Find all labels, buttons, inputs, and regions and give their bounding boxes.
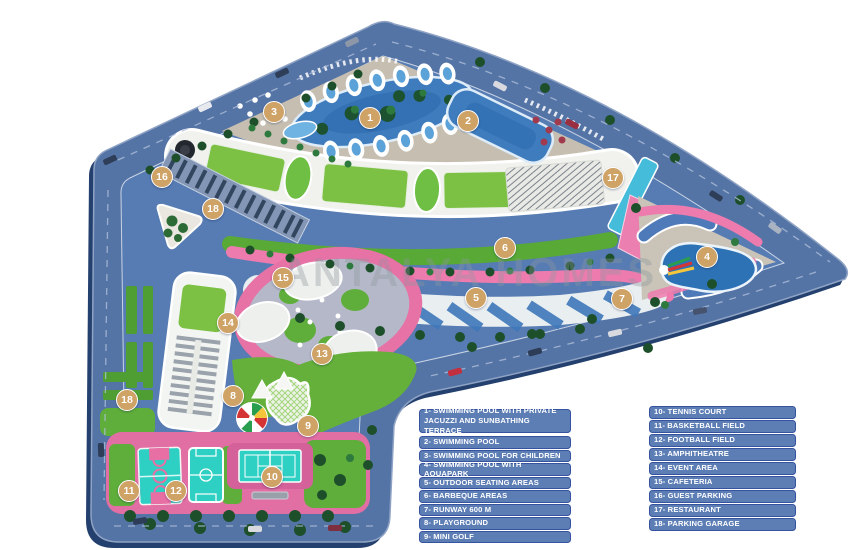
- map-marker-13: 13: [311, 343, 333, 365]
- map-marker-17: 17: [602, 167, 624, 189]
- map-marker-12: 12: [165, 480, 187, 502]
- map-marker-4: 4: [696, 246, 718, 268]
- legend-item-15: 15- CAFETERIA: [649, 476, 796, 489]
- map-marker-5: 5: [465, 287, 487, 309]
- map-marker-9: 9: [297, 415, 319, 437]
- map-marker-18: 18: [202, 198, 224, 220]
- map-marker-16: 16: [151, 166, 173, 188]
- football-field: [189, 448, 223, 502]
- map-marker-2: 2: [457, 110, 479, 132]
- legend-item-4: 4- SWIMMING POOL WITH AQUAPARK: [419, 463, 571, 476]
- legend-item-18: 18- PARKING GARAGE: [649, 518, 796, 531]
- roof-garden: [322, 163, 409, 208]
- map-marker-7: 7: [611, 288, 633, 310]
- roof-garden: [444, 171, 517, 208]
- legend-item-7: 7- RUNWAY 600 M: [419, 504, 571, 517]
- legend-item-17: 17- RESTAURANT: [649, 504, 796, 517]
- pergola-roof: [505, 160, 604, 212]
- bench: [252, 492, 288, 499]
- legend-item-12: 12- FOOTBALL FIELD: [649, 434, 796, 447]
- map-marker-18: 18: [116, 389, 138, 411]
- carousel: [236, 402, 268, 434]
- legend-item-16: 16- GUEST PARKING: [649, 490, 796, 503]
- legend-item-14: 14- EVENT AREA: [649, 462, 796, 475]
- legend-item-13: 13- AMPHITHEATRE: [649, 448, 796, 461]
- map-marker-1: 1: [359, 107, 381, 129]
- legend-item-8: 8- PLAYGROUND: [419, 517, 571, 530]
- map-marker-3: 3: [263, 101, 285, 123]
- legend-item-9: 9- MINI GOLF: [419, 531, 571, 544]
- legend-item-1: 1- SWIMMING POOL WITH PRIVATE JACUZZI AN…: [419, 409, 571, 433]
- legend-item-6: 6- BARBEQUE AREAS: [419, 490, 571, 503]
- legend-item-5: 5- OUTDOOR SEATING AREAS: [419, 477, 571, 490]
- map-marker-8: 8: [222, 385, 244, 407]
- sports-area: [106, 432, 370, 514]
- map-marker-11: 11: [118, 480, 140, 502]
- legend-item-2: 2- SWIMMING POOL: [419, 436, 571, 449]
- legend-item-11: 11- BASKETBALL FIELD: [649, 420, 796, 433]
- map-marker-10: 10: [261, 466, 283, 488]
- legend-item-10: 10- TENNIS COURT: [649, 406, 796, 419]
- site-plan-page: ANTALYA HOMES 12345678910111213141516171…: [0, 0, 850, 550]
- map-marker-15: 15: [272, 267, 294, 289]
- map-marker-6: 6: [494, 237, 516, 259]
- map-marker-14: 14: [217, 312, 239, 334]
